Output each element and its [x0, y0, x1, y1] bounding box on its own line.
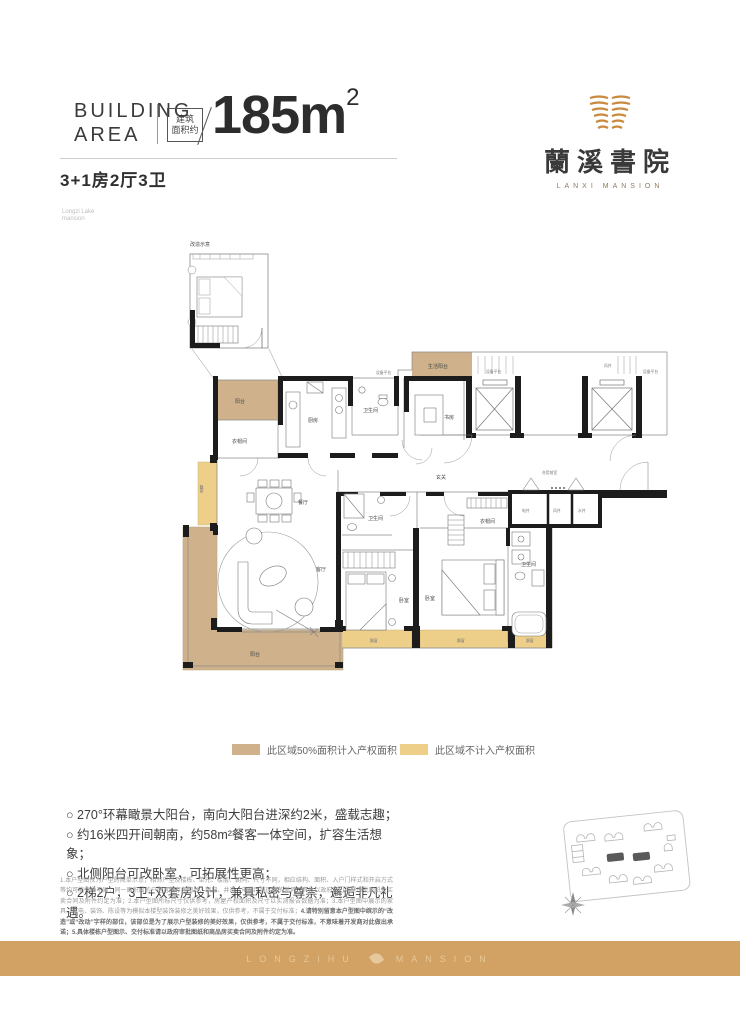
area-value: 185m2	[212, 84, 358, 146]
footer-brand-right: MANSION	[396, 954, 494, 964]
label-windshaft-top: 风井	[604, 363, 612, 368]
label-south-balcony: 阳台	[250, 651, 260, 658]
label-baywindow-1: 飘窗	[370, 638, 378, 643]
label-living: 客厅	[316, 566, 326, 573]
svg-text:改造示意: 改造示意	[190, 241, 210, 248]
label-kitchen: 厨房	[308, 417, 318, 424]
corner-watermark: Longzi Lake mansion	[62, 209, 94, 223]
footer-band: LONGZIHU MANSION	[0, 941, 740, 976]
brand-name-cn: 蘭溪書院	[530, 142, 690, 179]
brand-name-en: LANXI MANSION	[530, 183, 690, 190]
label-equip-1: 设备平台	[376, 370, 391, 375]
label-wind-shaft: 风井	[553, 508, 561, 513]
label-cloakroom-n: 衣帽间	[232, 438, 247, 445]
brand-logo: 蘭溪書院 LANXI MANSION	[530, 92, 690, 190]
utility-shafts	[510, 478, 600, 526]
legend-label-50pct: 此区域50%面积计入产权面积	[267, 742, 397, 757]
header-divider	[157, 104, 158, 144]
label-equip-3: 设备平台	[643, 369, 658, 374]
label-water-shaft: 水井	[578, 508, 586, 513]
label-shared-lobby: 合用前室	[542, 470, 557, 475]
label-baywindow-2: 飘窗	[457, 638, 465, 643]
label-life-balcony: 生活阳台	[428, 363, 448, 370]
label-study: 书房	[444, 414, 454, 421]
label-baywindow-3: 飘窗	[526, 638, 534, 643]
legend-label-excluded: 此区域不计入产权面积	[435, 742, 535, 757]
label-cloakroom-m: 衣帽间	[480, 518, 495, 525]
feature-item: ○ 270°环幕瞰景大阳台，南向大阳台进深约2米，盛载志趣；	[66, 806, 406, 826]
floorplan-poster: BUILDING AREA 建筑 面积约 185m2 3+1房2厅3卫 蘭溪書院…	[0, 0, 740, 1017]
label-bedroom-1: 卧室	[399, 597, 409, 604]
elevator-shafts	[476, 356, 636, 430]
floor-plan: 改造示意	[180, 230, 670, 690]
label-baywindow-w: 飘窗	[199, 484, 204, 493]
label-foyer: 玄关	[436, 474, 446, 481]
label-dining: 餐厅	[298, 499, 308, 506]
label-bath-3: 卫生间	[521, 561, 536, 568]
label-equip-2: 设备平台	[486, 369, 501, 374]
compass-icon	[561, 892, 585, 916]
leaf-icon	[369, 951, 384, 966]
legend-swatch-50pct	[232, 744, 260, 755]
area-superscript: 2	[346, 84, 358, 111]
label-electric-shaft: 电井	[522, 508, 530, 513]
unit-type: 3+1房2厅3卫	[60, 166, 167, 191]
book-icon	[586, 92, 634, 136]
legend-swatch-excluded	[400, 744, 428, 755]
area-badge: 建筑 面积约	[167, 108, 203, 142]
disclaimer: 1.本户型图仅为户型的简单示意，相邻户型及楼栋、单元、楼层、朝向、尺寸不同，相应…	[60, 876, 393, 938]
renovation-inset: 改造示意	[188, 241, 283, 379]
feature-item: ○ 约16米四开间朝南，约58m²餐客一体空间，扩容生活想象；	[66, 826, 406, 865]
label-bath-2: 卫生间	[368, 515, 383, 522]
label-bath-1: 卫生间	[363, 407, 378, 414]
footer-brand-left: LONGZIHU	[246, 954, 357, 964]
site-map	[555, 800, 700, 925]
label-north-balcony: 阳台	[235, 398, 245, 405]
header-rule	[60, 158, 397, 159]
label-bedroom-2: 卧室	[425, 595, 435, 602]
